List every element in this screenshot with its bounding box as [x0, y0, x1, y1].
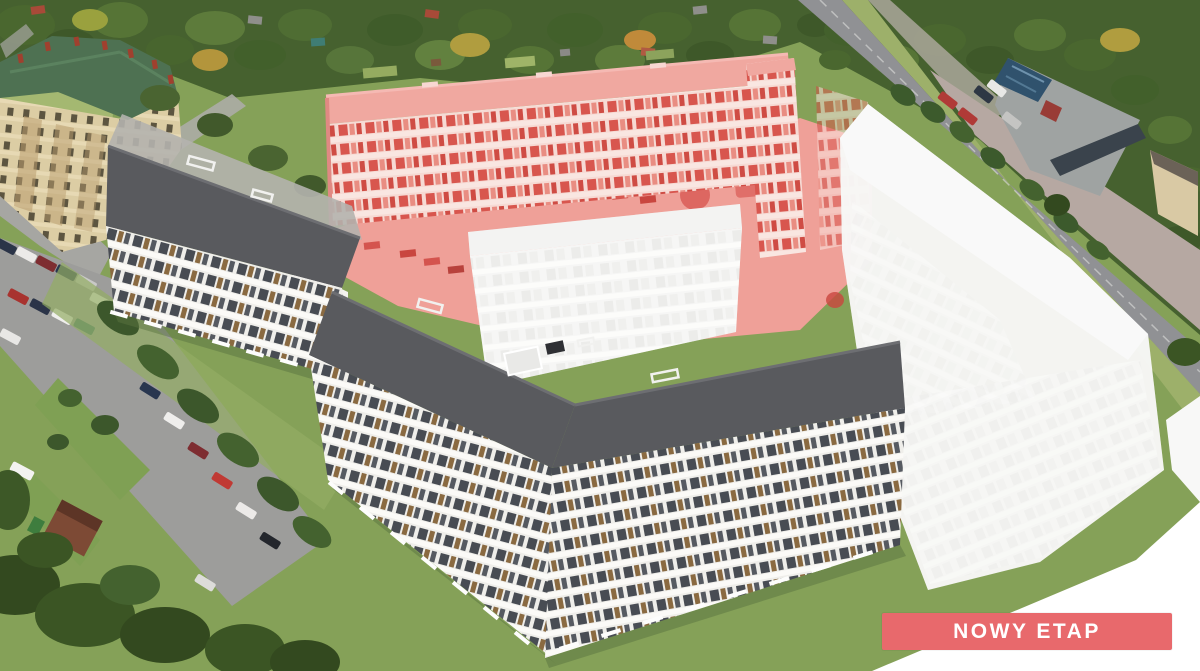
new-phase-badge[interactable]: NOWY ETAP — [882, 613, 1172, 650]
scene-canvas — [0, 0, 1200, 671]
new-phase-badge-label: NOWY ETAP — [953, 620, 1101, 644]
aerial-development-visualization: NOWY ETAP — [0, 0, 1200, 671]
